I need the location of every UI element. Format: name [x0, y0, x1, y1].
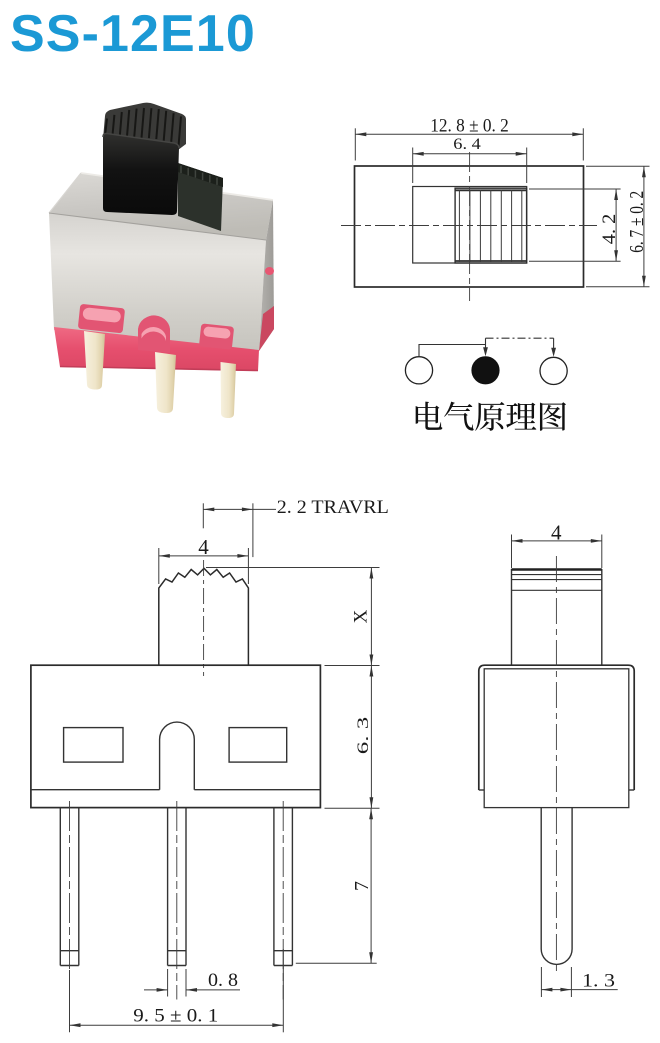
- svg-text:1. 3: 1. 3: [582, 971, 615, 991]
- svg-text:4. 2: 4. 2: [599, 214, 620, 245]
- svg-text:2. 2 TRAVRL: 2. 2 TRAVRL: [277, 498, 389, 518]
- svg-text:9. 5 ± 0. 1: 9. 5 ± 0. 1: [133, 1006, 218, 1027]
- svg-text:4: 4: [551, 520, 562, 544]
- svg-text:7: 7: [351, 881, 373, 891]
- svg-text:0. 8: 0. 8: [208, 971, 238, 991]
- svg-text:12. 8 ± 0. 2: 12. 8 ± 0. 2: [430, 117, 509, 137]
- svg-text:4: 4: [198, 535, 209, 559]
- svg-text:6. 4: 6. 4: [453, 136, 481, 153]
- svg-text:X: X: [351, 609, 372, 623]
- svg-text:6. 3: 6. 3: [355, 716, 372, 754]
- svg-text:6. 7 ± 0. 2: 6. 7 ± 0. 2: [626, 191, 648, 253]
